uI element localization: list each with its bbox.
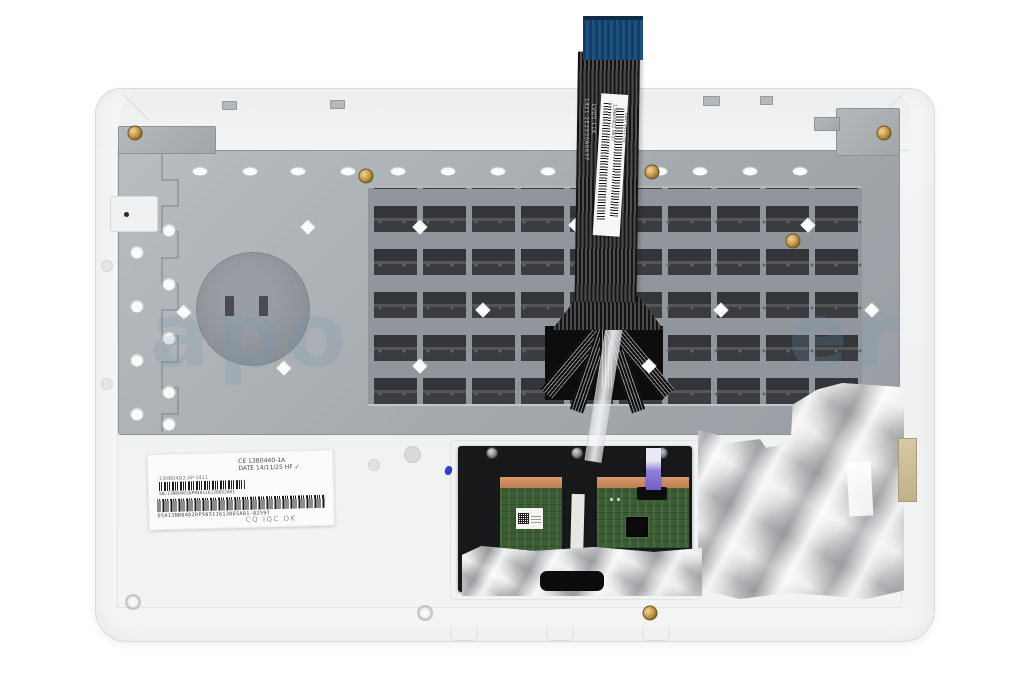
plate-hole-oval xyxy=(441,167,456,176)
chassis-tab xyxy=(642,628,670,641)
brass-screw xyxy=(359,169,374,184)
plate-hole-oval xyxy=(193,167,208,176)
plate-circular-feature xyxy=(196,252,310,366)
touchpad-ffc-purple-end xyxy=(646,448,661,490)
brass-screw xyxy=(645,165,660,180)
plate-hole-oval xyxy=(743,167,758,176)
palmrest-top-edge-recess xyxy=(120,92,910,151)
plate-hole-oval xyxy=(541,167,556,176)
plate-hole-round xyxy=(163,278,176,291)
solder-pad xyxy=(610,498,613,501)
hinge-latch-slot xyxy=(703,96,720,106)
touchpad-controller-chip xyxy=(625,516,649,538)
barcode xyxy=(597,101,612,219)
plate-hole-round xyxy=(163,224,176,237)
plate-slot xyxy=(225,296,234,316)
cable-print-text: LVD5-L1K xyxy=(590,104,596,134)
plate-hole-oval xyxy=(793,167,808,176)
ribbon-cable-blue-stiffener xyxy=(583,16,643,60)
touchpad-screw xyxy=(486,447,498,459)
hinge-latch-slot xyxy=(330,100,345,109)
plate-slot xyxy=(259,296,268,316)
brass-screw xyxy=(877,126,892,141)
label-note-line2: DATE 14/11/25 HF ✓ xyxy=(238,463,324,472)
plate-cutout xyxy=(110,196,158,232)
plate-hole-oval xyxy=(291,167,306,176)
plate-hole-oval xyxy=(693,167,708,176)
brass-screw xyxy=(128,126,143,141)
touchpad-qr-label xyxy=(516,508,543,529)
molding-bump xyxy=(101,260,113,272)
plate-hole-round xyxy=(163,332,176,345)
brass-screw xyxy=(786,234,801,249)
solder-pad xyxy=(617,498,620,501)
plate-hole-round xyxy=(131,246,144,259)
plate-hole-oval xyxy=(391,167,406,176)
label-text-lines xyxy=(531,514,541,523)
side-port-bracket xyxy=(898,438,917,502)
plate-hole-round xyxy=(131,408,144,421)
plate-hole-oval xyxy=(491,167,506,176)
iqc-stamp: CQ IQC OK xyxy=(246,515,297,524)
screw-grommet xyxy=(125,594,141,610)
alignment-dot xyxy=(124,212,129,217)
barcode xyxy=(157,495,325,512)
panel-seam xyxy=(117,607,902,608)
brass-screw xyxy=(643,606,658,621)
molding-bump xyxy=(101,378,113,390)
service-barcode-label: CE 13B0440-1A DATE 14/11/25 HF ✓ 13NB04D… xyxy=(147,450,335,531)
qr-code xyxy=(518,513,529,524)
plate-hole-round xyxy=(131,354,144,367)
label-note: CE 13B0440-1A DATE 14/11/25 HF ✓ xyxy=(238,456,324,472)
screw-boss xyxy=(404,446,421,463)
plate-hole-round xyxy=(163,418,176,431)
plate-hole-oval xyxy=(341,167,356,176)
barcode-caption: SN:13NB04D2AP0401161306S2A01 xyxy=(159,490,235,497)
foil-white-patch xyxy=(847,461,874,516)
chassis-tab xyxy=(546,628,574,641)
plate-tab xyxy=(814,117,840,131)
plate-hole-oval xyxy=(243,167,258,176)
cable-print-text: 1421-2E2030A0637 xyxy=(583,98,589,161)
screw-grommet xyxy=(417,605,433,621)
touchpad-strip-label xyxy=(570,494,584,550)
hinge-latch-slot xyxy=(222,101,237,110)
laptop-palmrest-rear-photo: 1421-2E2030A0637 LVD5-L1K 13NB04D2 0637 … xyxy=(0,0,1024,680)
touchpad-screw xyxy=(571,447,583,459)
hinge-latch-slot xyxy=(760,96,773,105)
chassis-tab xyxy=(450,628,478,641)
touchpad-button-notch xyxy=(540,571,604,591)
screw-boss xyxy=(368,459,380,471)
plate-hole-round xyxy=(163,386,176,399)
plate-hole-round xyxy=(131,300,144,313)
